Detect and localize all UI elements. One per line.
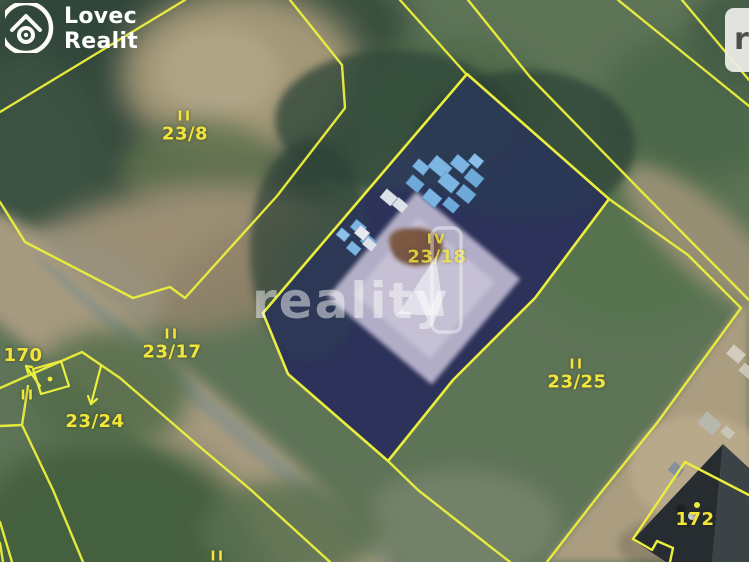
map-canvas[interactable]: II23/8II23/17II23/25IV23/1823/24170II172… — [0, 0, 749, 562]
parcel-label: II — [210, 549, 225, 562]
parcel-label: II23/17 — [142, 327, 201, 362]
house-crosshair-icon — [5, 3, 55, 53]
parcel-label: II23/8 — [162, 109, 208, 144]
agency-logo[interactable]: Lovec Realit — [5, 3, 138, 54]
parcel-label: II23/25 — [547, 357, 606, 392]
agency-name: Lovec Realit — [64, 4, 138, 54]
parcel-labels-layer: II23/8II23/17II23/25IV23/1823/24170II172… — [0, 0, 749, 562]
agency-name-line1: Lovec — [64, 4, 138, 29]
parcel-label: II — [20, 388, 35, 403]
parcel-label: 23/24 — [65, 412, 124, 432]
parcel-label: 170 — [3, 346, 42, 366]
parcel-label: 172 — [675, 510, 714, 530]
parcel-label: IV23/18 — [407, 232, 466, 267]
agency-name-line2: Realit — [64, 29, 138, 54]
watermark-corner-box: r — [725, 8, 749, 72]
watermark-corner-letter: r — [734, 22, 749, 57]
